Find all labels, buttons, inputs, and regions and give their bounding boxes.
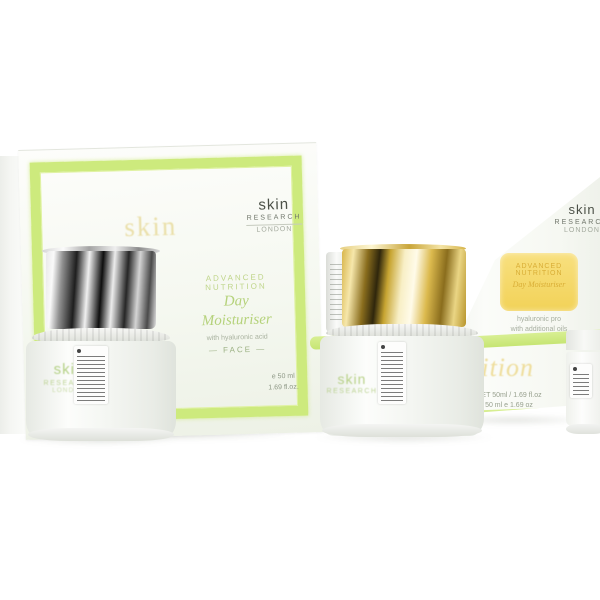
brand-research: RESEARCH (320, 388, 384, 396)
jar-lid (566, 330, 600, 350)
gold-jar: skin RESEARCH (318, 244, 486, 440)
brand-city: LONDON (554, 227, 600, 235)
ingredients-label (570, 364, 592, 398)
title-big-1: Day (172, 292, 300, 312)
jar-base (322, 424, 482, 437)
brand-name: skin (320, 372, 384, 387)
size-line-2: 1.69 fl.oz. (256, 382, 310, 394)
brand-research: RESEARCH (240, 214, 308, 224)
partial-jar-right (566, 330, 600, 434)
label-line-1: ADVANCED (500, 263, 578, 270)
jar-base (28, 428, 174, 441)
silver-jar: skin RESEARCH LONDON (26, 246, 176, 442)
brand-name: skin (554, 203, 600, 218)
yellow-label: ADVANCED NUTRITION Day Moisturiser (500, 253, 578, 311)
gift-box-size: e 50 ml 1.69 fl.oz. (256, 371, 311, 393)
product-photo: skin skin RESEARCH LONDON ADVANCED NUTRI… (0, 0, 600, 600)
ingredients-label (74, 346, 108, 404)
brand-research: RESEARCH (554, 219, 600, 227)
gold-lid (342, 249, 466, 327)
label-line-2: NUTRITION (500, 270, 578, 277)
right-box-brand-logo: skin RESEARCH LONDON (554, 203, 600, 235)
jar-base (566, 424, 600, 434)
gift-box-brand-logo: skin RESEARCH LONDON (240, 195, 309, 235)
brand-name: skin (240, 195, 308, 214)
sub-line-1: hyaluronic pro (484, 315, 594, 325)
ingredients-label (378, 342, 406, 404)
chrome-lid (46, 251, 156, 329)
gift-box-product-title: ADVANCED NUTRITION Day Moisturiser with … (172, 272, 302, 356)
gift-box-watermark: skin (124, 211, 178, 243)
gold-jar-brand: skin RESEARCH (320, 372, 384, 396)
title-subtitle: with hyaluronic acid (173, 333, 301, 343)
title-big-2: Moisturiser (173, 311, 301, 331)
label-line-3: Day Moisturiser (500, 280, 578, 289)
